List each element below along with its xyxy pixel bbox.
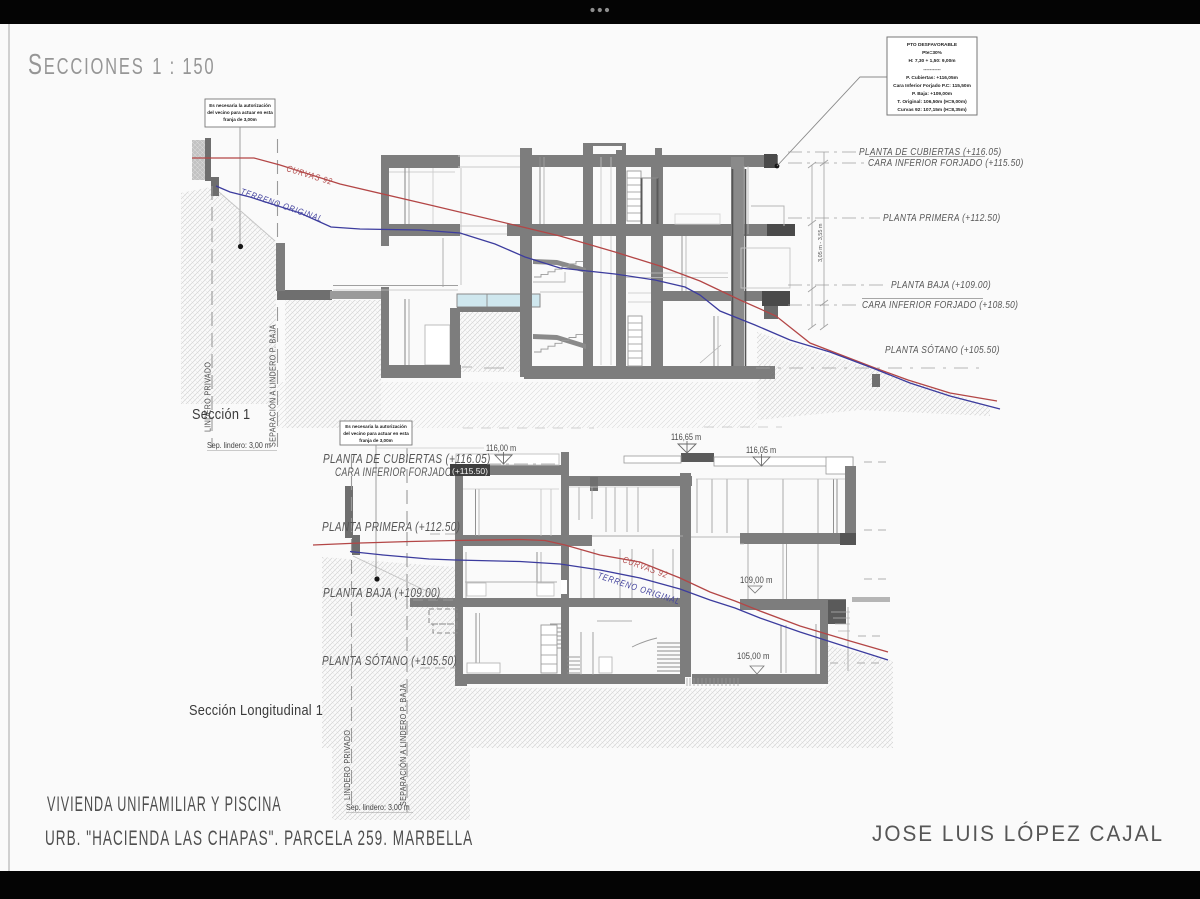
svg-text:TERRENO ORIGINAL: TERRENO ORIGINAL [239, 187, 324, 224]
svg-text:116,05 m: 116,05 m [746, 445, 776, 455]
svg-text:P. Baja: +109,00m: P. Baja: +109,00m [912, 91, 952, 97]
svg-text:H: 7,30 + 1,50: 9,00m: H: 7,30 + 1,50: 9,00m [908, 58, 955, 64]
svg-text:CARA INFERIOR FORJADO (+108.50: CARA INFERIOR FORJADO (+108.50) [862, 299, 1018, 311]
svg-text:LINDERO PRIVADO: LINDERO PRIVADO [342, 730, 352, 800]
svg-text:Es necesaria la autorización: Es necesaria la autorización [209, 103, 271, 108]
svg-text:PLANTA BAJA (+109.00): PLANTA BAJA (+109.00) [891, 279, 991, 291]
svg-text:CARA INFERIOR FORJADO (+115.50: CARA INFERIOR FORJADO (+115.50) [868, 157, 1024, 169]
svg-text:JOSE LUIS LÓPEZ CAJAL: JOSE LUIS LÓPEZ CAJAL [872, 820, 1164, 846]
svg-text:Curvas 92: 107,15m (H=8,35m): Curvas 92: 107,15m (H=8,35m) [897, 107, 967, 113]
svg-text:SEPARACIÓN A LINDERO P. BAJA: SEPARACIÓN A LINDERO P. BAJA [268, 324, 278, 447]
svg-text:(+115.50): (+115.50) [452, 466, 488, 476]
svg-text:105,00 m: 105,00 m [737, 650, 769, 661]
svg-text:P. Cubiertas: +116,05m: P. Cubiertas: +116,05m [906, 75, 958, 81]
svg-text:116,65 m: 116,65 m [671, 432, 701, 442]
svg-text:Pte=30%: Pte=30% [922, 50, 943, 56]
svg-text:116,00 m: 116,00 m [486, 443, 516, 453]
svg-text:del vecino para actuar en esta: del vecino para actuar en esta [343, 431, 409, 436]
svg-text:LINDERO PRIVADO: LINDERO PRIVADO [203, 362, 213, 432]
svg-text:CURVAS 92: CURVAS 92 [285, 164, 334, 187]
svg-text:PLANTA SÓTANO (+105.50): PLANTA SÓTANO (+105.50) [885, 344, 1000, 356]
svg-text:Cara Inferior Forjado P.C: 115: Cara Inferior Forjado P.C: 115,50m [893, 83, 971, 89]
svg-text:CARA INFERIOR FORJADO: CARA INFERIOR FORJADO [335, 467, 452, 480]
svg-text:PLANTA PRIMERA (+112.50): PLANTA PRIMERA (+112.50) [883, 212, 1001, 224]
svg-text:Sección Longitudinal 1: Sección Longitudinal 1 [189, 702, 323, 718]
svg-text:CURVAS 92: CURVAS 92 [621, 555, 669, 581]
svg-text:URB. "HACIENDA LAS CHAPAS". PA: URB. "HACIENDA LAS CHAPAS". PARCELA 259.… [45, 826, 473, 850]
svg-text:PLANTA PRIMERA (+112.50): PLANTA PRIMERA (+112.50) [322, 521, 460, 534]
svg-text:franja de 3,00m: franja de 3,00m [223, 117, 256, 122]
svg-text:VIVIENDA UNIFAMILIAR Y PISCINA: VIVIENDA UNIFAMILIAR Y PISCINA [47, 792, 282, 816]
svg-text:PLANTA SÓTANO (+105.50): PLANTA SÓTANO (+105.50) [322, 654, 457, 668]
svg-text:Sep. lindero: 3,00 m: Sep. lindero: 3,00 m [207, 440, 271, 450]
svg-text:Sección 1: Sección 1 [192, 406, 250, 422]
svg-text:PLANTA BAJA (+109.00): PLANTA BAJA (+109.00) [323, 587, 441, 600]
svg-text:T. Original: 106,50m (H=9,00m): T. Original: 106,50m (H=9,00m) [897, 99, 967, 105]
svg-text:PTO DESFAVORABLE: PTO DESFAVORABLE [907, 42, 958, 48]
svg-text:del vecino para actuar en esta: del vecino para actuar en esta [207, 110, 273, 115]
svg-text:Es necesaria la autorización: Es necesaria la autorización [345, 424, 407, 429]
svg-text:franja de 3,00m: franja de 3,00m [359, 438, 392, 443]
svg-text:SEPARACIÓN A LINDERO P. BAJA: SEPARACIÓN A LINDERO P. BAJA [398, 683, 408, 806]
svg-text:-----------: ----------- [923, 68, 941, 73]
svg-text:SECCIONES 1 : 150: SECCIONES 1 : 150 [28, 49, 215, 81]
svg-text:3,05 m - 3,55 m: 3,05 m - 3,55 m [818, 223, 824, 262]
svg-text:109,00 m: 109,00 m [740, 574, 772, 585]
